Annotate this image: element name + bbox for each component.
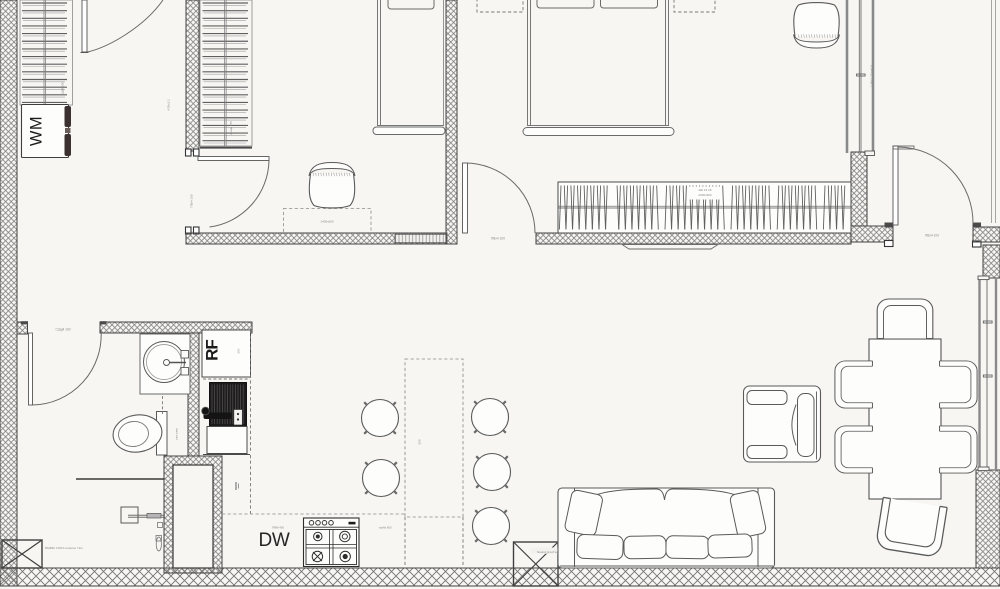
svg-text:сан узел: сан узел (175, 428, 179, 440)
svg-text:2930х660: 2930х660 (698, 193, 712, 197)
svg-text:4.05х3.2: 4.05х3.2 (167, 99, 171, 111)
svg-text:ПММ 450: ПММ 450 (272, 526, 285, 530)
svg-text:ПВх4 100: ПВх4 100 (925, 234, 939, 238)
svg-text:тумба 600: тумба 600 (378, 526, 392, 530)
svg-text:1400х600: 1400х600 (320, 220, 334, 224)
svg-text:RF: RF (203, 340, 222, 361)
svg-text:ПВх4 100: ПВх4 100 (190, 194, 194, 207)
svg-text:DW: DW (258, 530, 289, 551)
svg-text:ПВх4 100: ПВх4 100 (491, 236, 505, 240)
svg-text:ШК 19 18: ШК 19 18 (699, 188, 712, 192)
svg-text:1.48x1.26 h=0.9: 1.48x1.26 h=0.9 (870, 65, 874, 87)
svg-text:ШД4 100: ШД4 100 (61, 82, 65, 95)
svg-text:СШд4 100: СШд4 100 (55, 327, 70, 331)
svg-text:600: 600 (237, 348, 241, 353)
svg-text:600: 600 (418, 439, 422, 444)
svg-text:WM: WM (28, 116, 46, 146)
svg-text:БМ4В2 СОЛ4 отметка. Пол: БМ4В2 СОЛ4 отметка. Пол (45, 546, 83, 550)
svg-text:шкаф 155: шкаф 155 (229, 121, 233, 135)
